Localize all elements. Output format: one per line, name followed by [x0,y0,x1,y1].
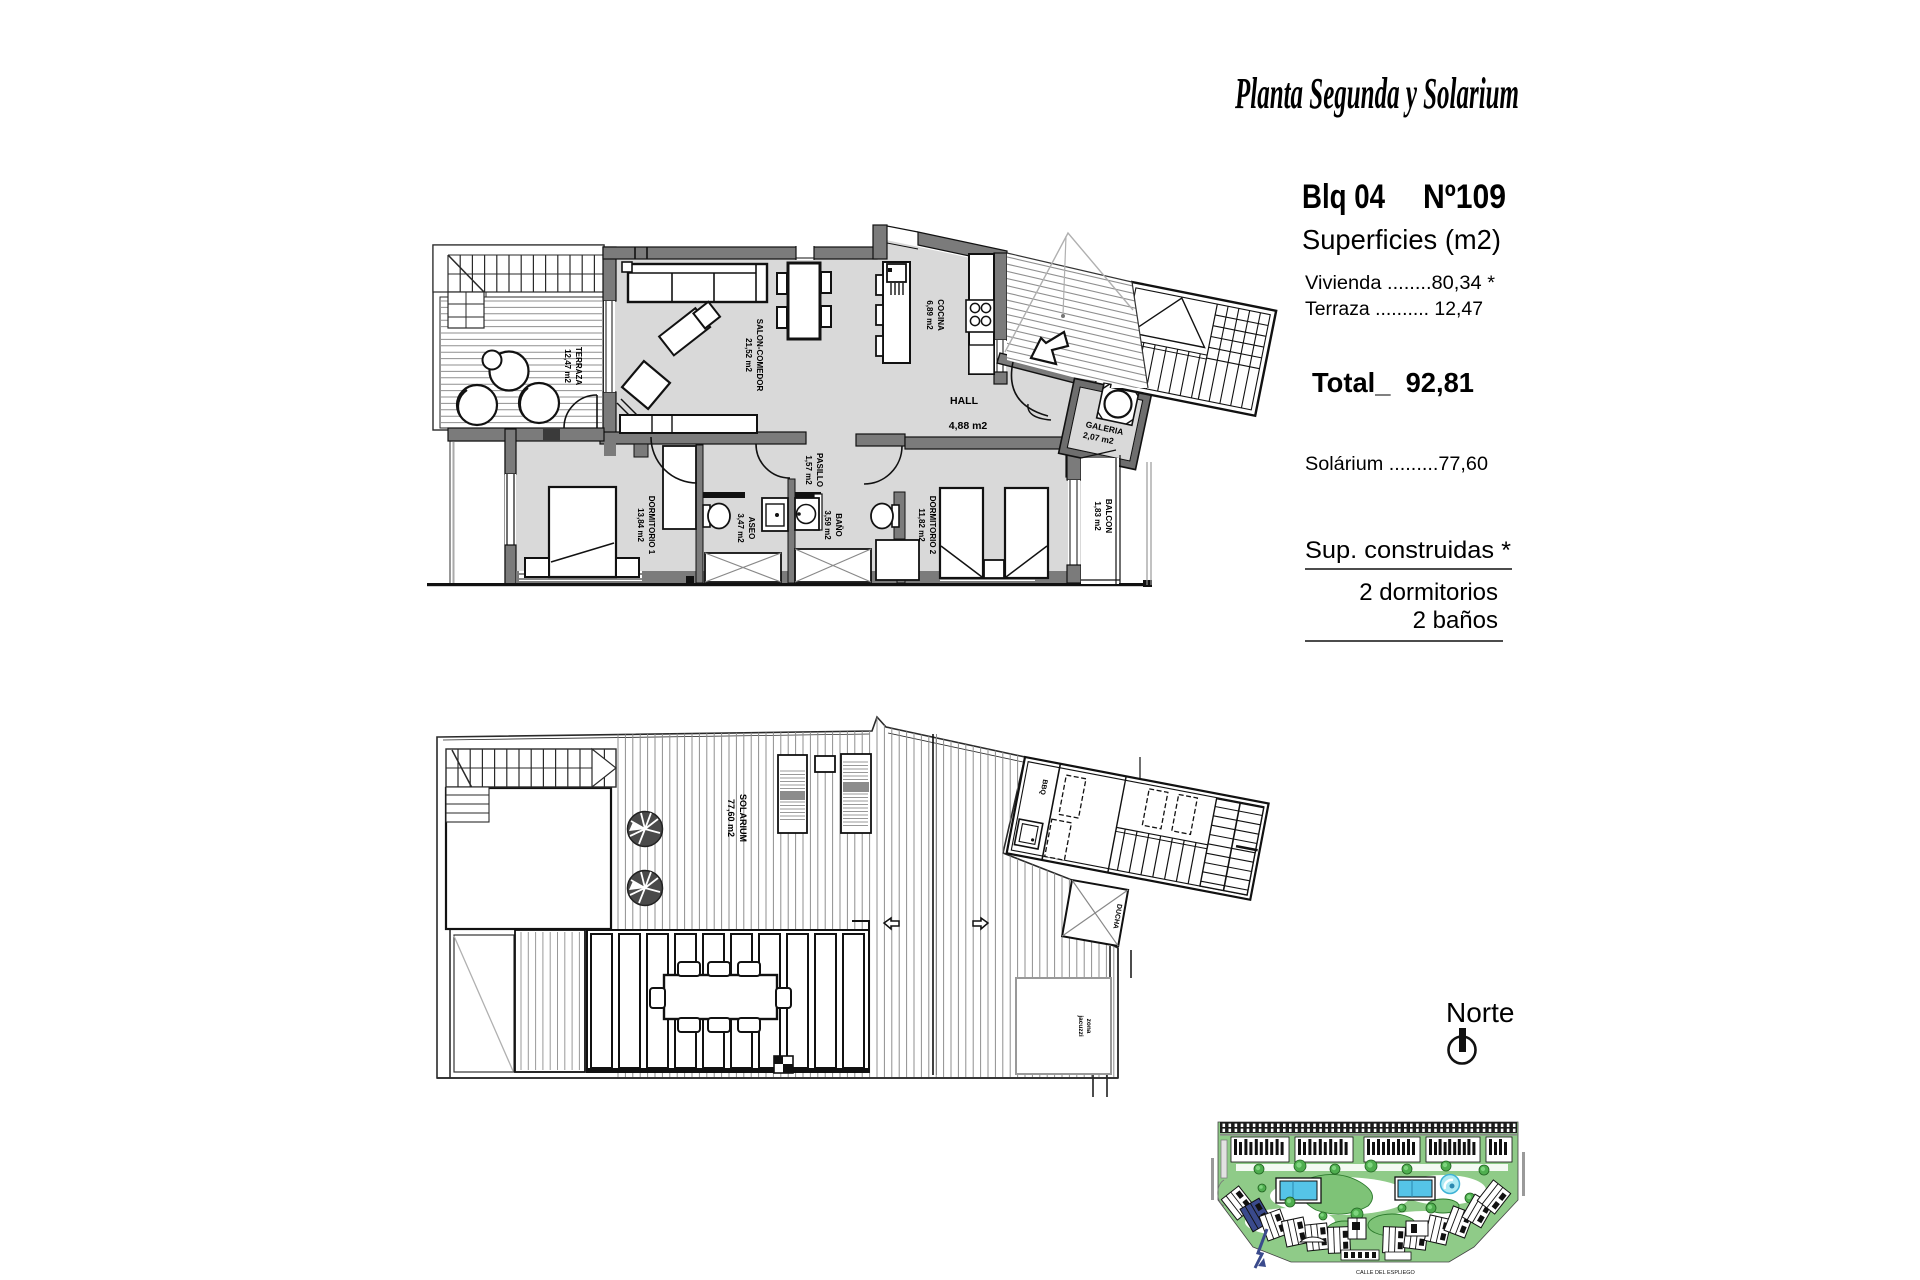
svg-text:2 baños: 2 baños [1413,607,1498,634]
svg-text:Total_ 92,81: Total_ 92,81 [1312,367,1474,398]
svg-text:1,57 m2: 1,57 m2 [804,455,813,485]
svg-text:Norte: Norte [1446,997,1514,1028]
svg-text:HALL: HALL [950,395,979,407]
svg-text:PASILLO: PASILLO [815,453,824,487]
svg-text:3,47 m2: 3,47 m2 [736,513,745,543]
svg-text:6,89 m2: 6,89 m2 [925,300,934,330]
svg-text:13,84 m2: 13,84 m2 [636,508,645,542]
svg-text:Blq 04: Blq 04 [1302,178,1385,216]
svg-text:Sup. construidas *: Sup. construidas * [1305,537,1511,564]
svg-text:12,47 m2: 12,47 m2 [563,349,572,383]
svg-text:BAÑO: BAÑO [834,513,843,537]
svg-text:COCINA: COCINA [936,299,945,331]
svg-text:jacuzzi: jacuzzi [1077,1014,1084,1037]
svg-text:Vivienda ........80,34 *: Vivienda ........80,34 * [1305,273,1496,294]
svg-text:2 dormitorios: 2 dormitorios [1359,579,1498,606]
svg-text:BALCON: BALCON [1104,499,1113,533]
svg-text:3,59 m2: 3,59 m2 [823,510,832,540]
svg-text:DORMITORIO 2: DORMITORIO 2 [928,496,937,555]
svg-text:TERRAZA: TERRAZA [574,347,583,385]
svg-text:Superficies (m2): Superficies (m2) [1302,224,1501,255]
svg-text:21,52 m2: 21,52 m2 [744,338,753,372]
svg-text:11,82 m2: 11,82 m2 [917,508,926,542]
svg-text:77,60 m2: 77,60 m2 [726,799,736,837]
svg-text:ASEO: ASEO [747,517,756,540]
svg-text:Terraza .......... 12,47: Terraza .......... 12,47 [1305,299,1483,320]
svg-text:zona: zona [1085,1019,1092,1034]
svg-text:Solárium .........77,60: Solárium .........77,60 [1305,454,1488,475]
svg-text:CALLE DEL ESPLIEGO: CALLE DEL ESPLIEGO [1356,1270,1416,1276]
svg-text:DORMITORIO 1: DORMITORIO 1 [647,496,656,555]
svg-text:1,83 m2: 1,83 m2 [1093,501,1102,531]
svg-text:Nº109: Nº109 [1423,178,1506,216]
svg-text:Planta Segunda y Solarium: Planta Segunda y Solarium [1234,69,1519,118]
svg-text:SOLARIUM: SOLARIUM [738,794,748,842]
svg-text:4,88 m2: 4,88 m2 [949,420,988,432]
svg-text:SALON-COMEDOR: SALON-COMEDOR [755,319,764,392]
